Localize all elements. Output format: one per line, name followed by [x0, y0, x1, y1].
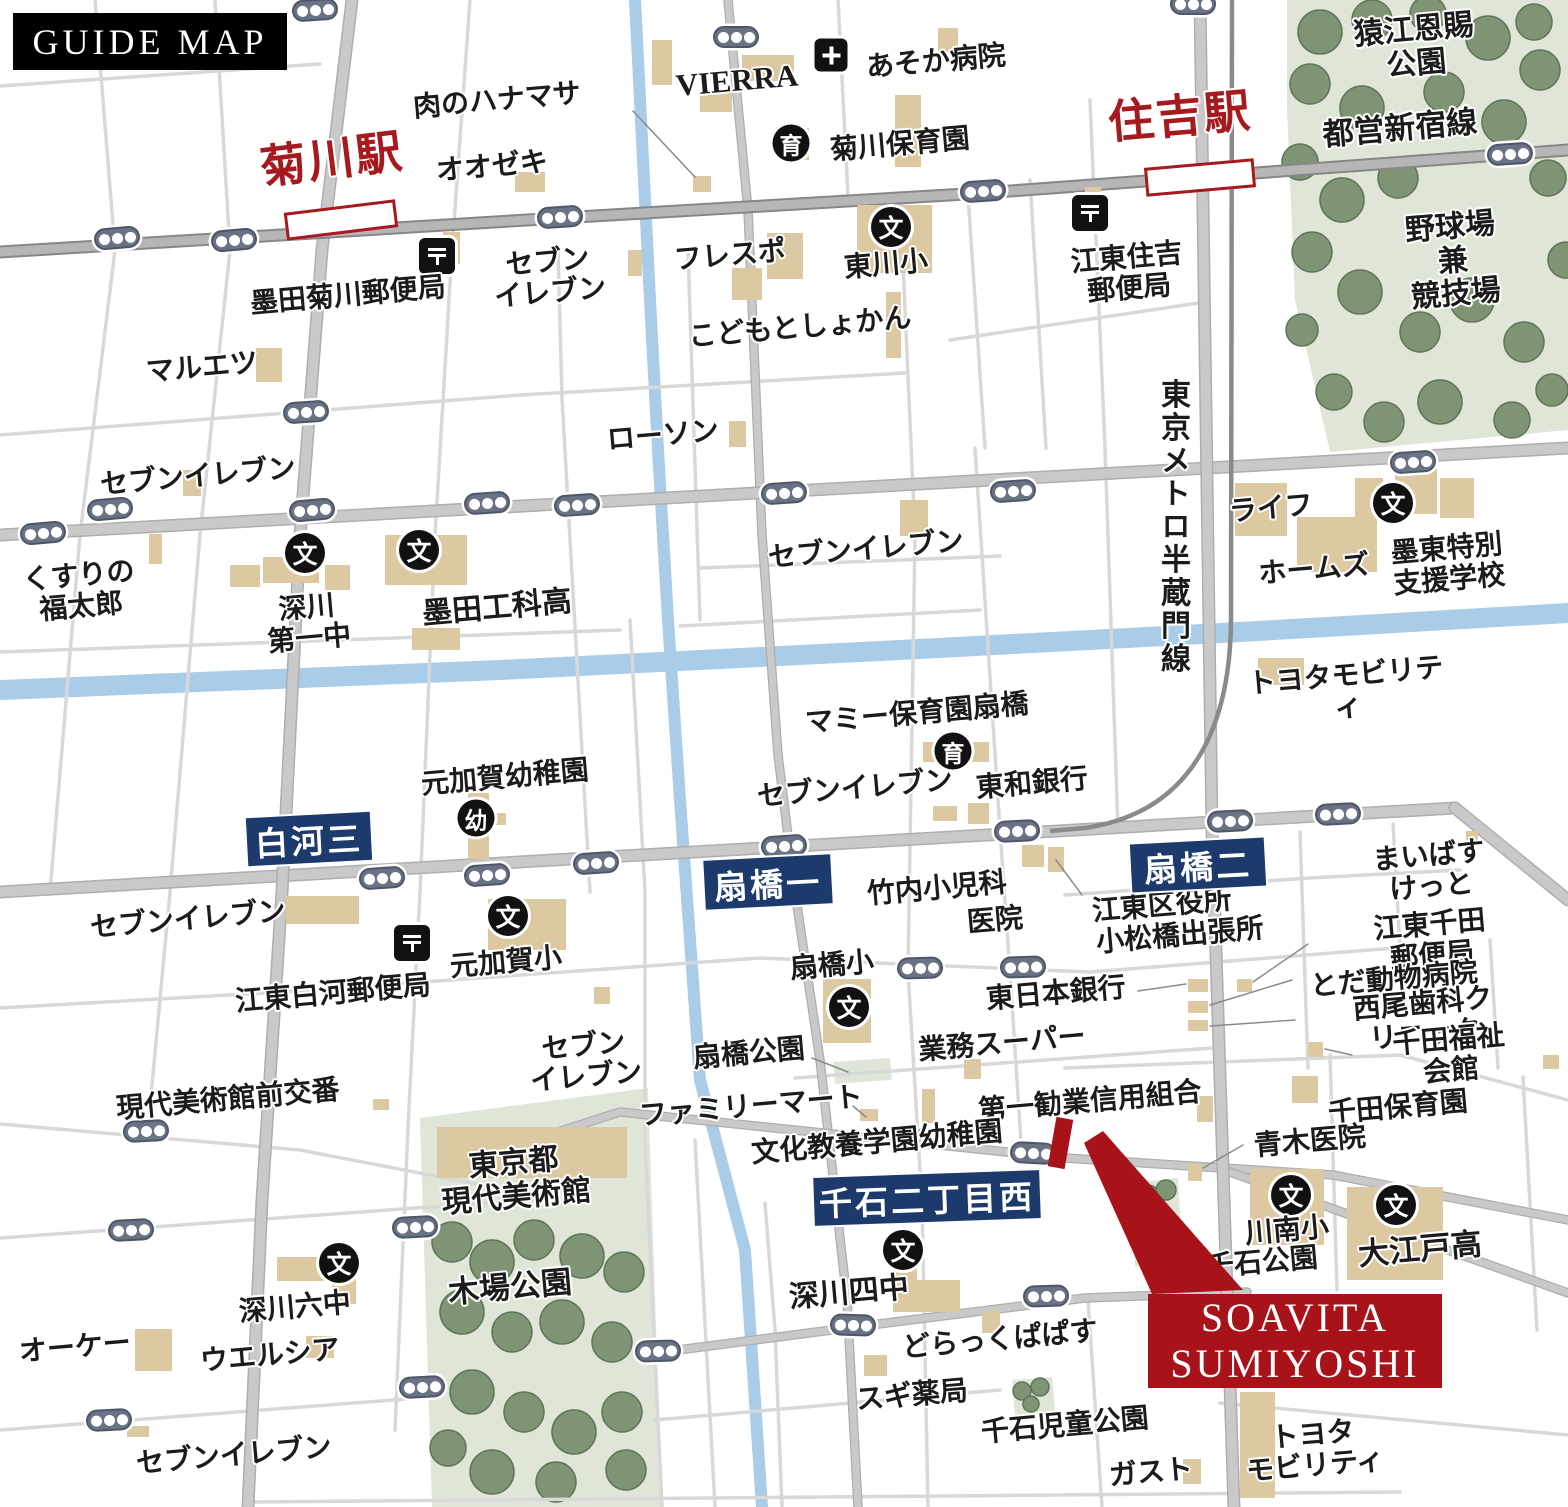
park-tree — [1286, 314, 1318, 346]
site-name-banner: SOAVITA SUMIYOSHI — [1148, 1294, 1442, 1388]
place-label: 江東住吉 郵便局 — [1069, 238, 1186, 310]
park-tree — [1320, 178, 1364, 222]
place-label: 深川 第一中 — [263, 589, 352, 659]
guide-map: 文文文文文文文文文文育育幼肉のハナマサオオゼキVIERRAあそか病院菊川保育園墨… — [0, 0, 1568, 1507]
traffic-light-icon — [391, 1215, 438, 1239]
building-footprint — [922, 1089, 935, 1123]
park-tree — [540, 1300, 584, 1344]
guide-map-title-banner: GUIDE MAP — [13, 13, 287, 70]
park-tree — [1292, 232, 1332, 272]
park-tree — [1298, 10, 1342, 54]
park-tree — [602, 1392, 642, 1432]
park-tree — [450, 1370, 494, 1414]
traffic-light-icon — [358, 865, 405, 890]
park-tree — [1516, 4, 1552, 40]
park-tree — [470, 1450, 514, 1494]
road-minor — [1300, 832, 1308, 1068]
district-badge: 扇橋一 — [703, 854, 832, 910]
park-tree — [604, 1252, 644, 1292]
building-footprint — [256, 348, 282, 382]
traffic-light-icon — [993, 819, 1040, 843]
traffic-light-icon — [1023, 1284, 1070, 1308]
building-footprint — [149, 534, 162, 564]
park-tree — [504, 1392, 544, 1432]
post-office-icon — [394, 925, 430, 961]
road-minor — [0, 373, 905, 435]
park-tree — [1494, 402, 1530, 438]
park-tree — [1536, 374, 1568, 406]
leader-line — [1253, 944, 1308, 982]
place-label: 千田福祉会館 — [1388, 1020, 1511, 1093]
park-tree — [1482, 100, 1526, 144]
school-icon: 文 — [1376, 1185, 1416, 1225]
building-footprint — [594, 987, 610, 1004]
traffic-light-icon — [713, 26, 759, 48]
post-office-icon — [419, 238, 455, 274]
building-footprint — [135, 1329, 172, 1371]
building-footprint — [1188, 1164, 1202, 1181]
building-footprint — [968, 803, 989, 824]
traffic-light-icon — [989, 478, 1036, 503]
park-tree — [1400, 312, 1440, 352]
park-tree — [1418, 380, 1462, 424]
traffic-light-icon — [1314, 802, 1361, 826]
building-footprint — [1188, 1001, 1208, 1013]
park-tree — [552, 1410, 596, 1454]
rail-line-label: 東京メトロ半蔵門線 — [1157, 379, 1187, 676]
district-badge: 白河三 — [246, 812, 372, 866]
traffic-light-icon — [1486, 141, 1533, 166]
place-label: くすりの 福太郎 — [21, 556, 138, 628]
building-footprint — [1440, 478, 1474, 518]
nursery-icon: 育 — [935, 733, 972, 770]
park-tree — [606, 1450, 646, 1490]
park-tree — [514, 1220, 554, 1260]
park-tree — [1364, 402, 1404, 442]
traffic-light-icon — [398, 1375, 445, 1399]
place-label: 医院 — [966, 903, 1025, 939]
park-tree — [432, 1222, 472, 1262]
traffic-light-icon — [463, 862, 510, 887]
traffic-light-icon — [760, 480, 807, 505]
hospital-icon — [815, 39, 848, 72]
building-footprint — [373, 1099, 389, 1110]
traffic-light-icon — [959, 178, 1006, 203]
road-minor — [680, 610, 980, 626]
building-footprint — [1188, 1020, 1208, 1031]
building-footprint — [412, 628, 460, 650]
park-tree — [1504, 322, 1544, 362]
traffic-light-icon — [85, 1408, 132, 1432]
building-footprint — [729, 421, 746, 447]
building-footprint — [127, 1426, 149, 1437]
nursery-icon: 育 — [773, 125, 810, 162]
building-footprint — [1292, 1076, 1318, 1103]
guide-map-title: GUIDE MAP — [32, 21, 267, 63]
school-icon: 文 — [1373, 483, 1413, 523]
place-label: セブン イレブン — [490, 242, 607, 314]
place-label: トヨタ モビリティ — [1242, 1414, 1385, 1489]
leader-line — [1056, 860, 1082, 895]
road-minor — [1523, 1077, 1537, 1330]
park-tree — [430, 1430, 466, 1466]
road-minor — [765, 1203, 782, 1507]
school-icon: 文 — [399, 530, 439, 570]
school-icon: 文 — [883, 1230, 923, 1270]
road-minor — [558, 250, 590, 892]
park-tree — [1031, 1378, 1049, 1396]
site-name-line1: SOAVITA — [1201, 1295, 1389, 1341]
building-footprint — [325, 565, 350, 590]
road-minor — [695, 1140, 715, 1507]
place-label: まいばすけっと — [1359, 835, 1502, 910]
building-footprint — [1543, 1055, 1559, 1069]
basemap-canvas — [0, 0, 1568, 1507]
park-tree — [1290, 64, 1330, 104]
school-icon: 文 — [488, 896, 528, 936]
place-label: 墨東特別 支援学校 — [1389, 529, 1506, 601]
leader-line — [1138, 984, 1186, 991]
traffic-light-icon — [282, 399, 329, 424]
building-footprint — [864, 1355, 887, 1376]
building-footprint — [1237, 979, 1252, 992]
park-tree — [1023, 1396, 1039, 1412]
road-minor — [1030, 180, 1046, 448]
traffic-light-icon — [1000, 955, 1047, 979]
road-minor — [50, 0, 115, 892]
kindergarten-icon: 幼 — [458, 800, 495, 837]
place-label: 東京都 現代美術館 — [437, 1140, 592, 1220]
building-footprint — [933, 806, 957, 821]
traffic-light-icon — [536, 204, 583, 229]
place-label: セブン イレブン — [526, 1026, 643, 1098]
traffic-light-icon — [572, 850, 619, 875]
building-footprint — [286, 896, 359, 924]
school-icon: 文 — [829, 987, 869, 1027]
building-footprint — [902, 1280, 960, 1312]
park-tree — [536, 1462, 576, 1502]
park-tree — [1530, 160, 1566, 196]
traffic-light-icon — [635, 1339, 682, 1363]
post-office-icon — [1072, 195, 1108, 231]
traffic-light-icon — [1389, 449, 1436, 474]
road-minor — [0, 1398, 420, 1430]
place-label: 野球場兼 競技場 — [1391, 206, 1514, 316]
school-icon: 文 — [1271, 1175, 1311, 1215]
park-tree — [592, 1322, 632, 1362]
school-icon: 文 — [871, 207, 911, 247]
district-badge: 千石二丁目西 — [813, 1170, 1041, 1226]
building-footprint — [1188, 979, 1208, 992]
school-icon: 文 — [285, 533, 325, 573]
building-footprint — [1022, 845, 1044, 867]
school-icon: 文 — [319, 1243, 359, 1283]
site-name-line2: SUMIYOSHI — [1170, 1341, 1419, 1387]
building-footprint — [732, 268, 762, 300]
park-tree — [1338, 270, 1382, 314]
place-label: 猿江恩賜 公園 — [1352, 8, 1477, 85]
building-footprint — [230, 565, 260, 587]
traffic-light-icon — [897, 956, 944, 980]
traffic-light-icon — [107, 1218, 154, 1242]
traffic-light-icon — [1170, 0, 1216, 15]
traffic-light-icon — [830, 1313, 877, 1337]
building-footprint — [693, 176, 711, 192]
park-tree — [492, 1312, 532, 1352]
building-footprint — [1308, 1042, 1323, 1057]
traffic-light-icon — [463, 490, 510, 515]
building-footprint — [652, 40, 672, 85]
traffic-light-icon — [553, 492, 600, 517]
building-footprint — [628, 250, 642, 276]
park-tree — [1520, 50, 1560, 90]
traffic-light-icon — [1206, 809, 1253, 833]
road-minor — [968, 195, 985, 448]
park-tree — [1316, 374, 1352, 410]
district-badge: 扇橋二 — [1130, 838, 1266, 893]
